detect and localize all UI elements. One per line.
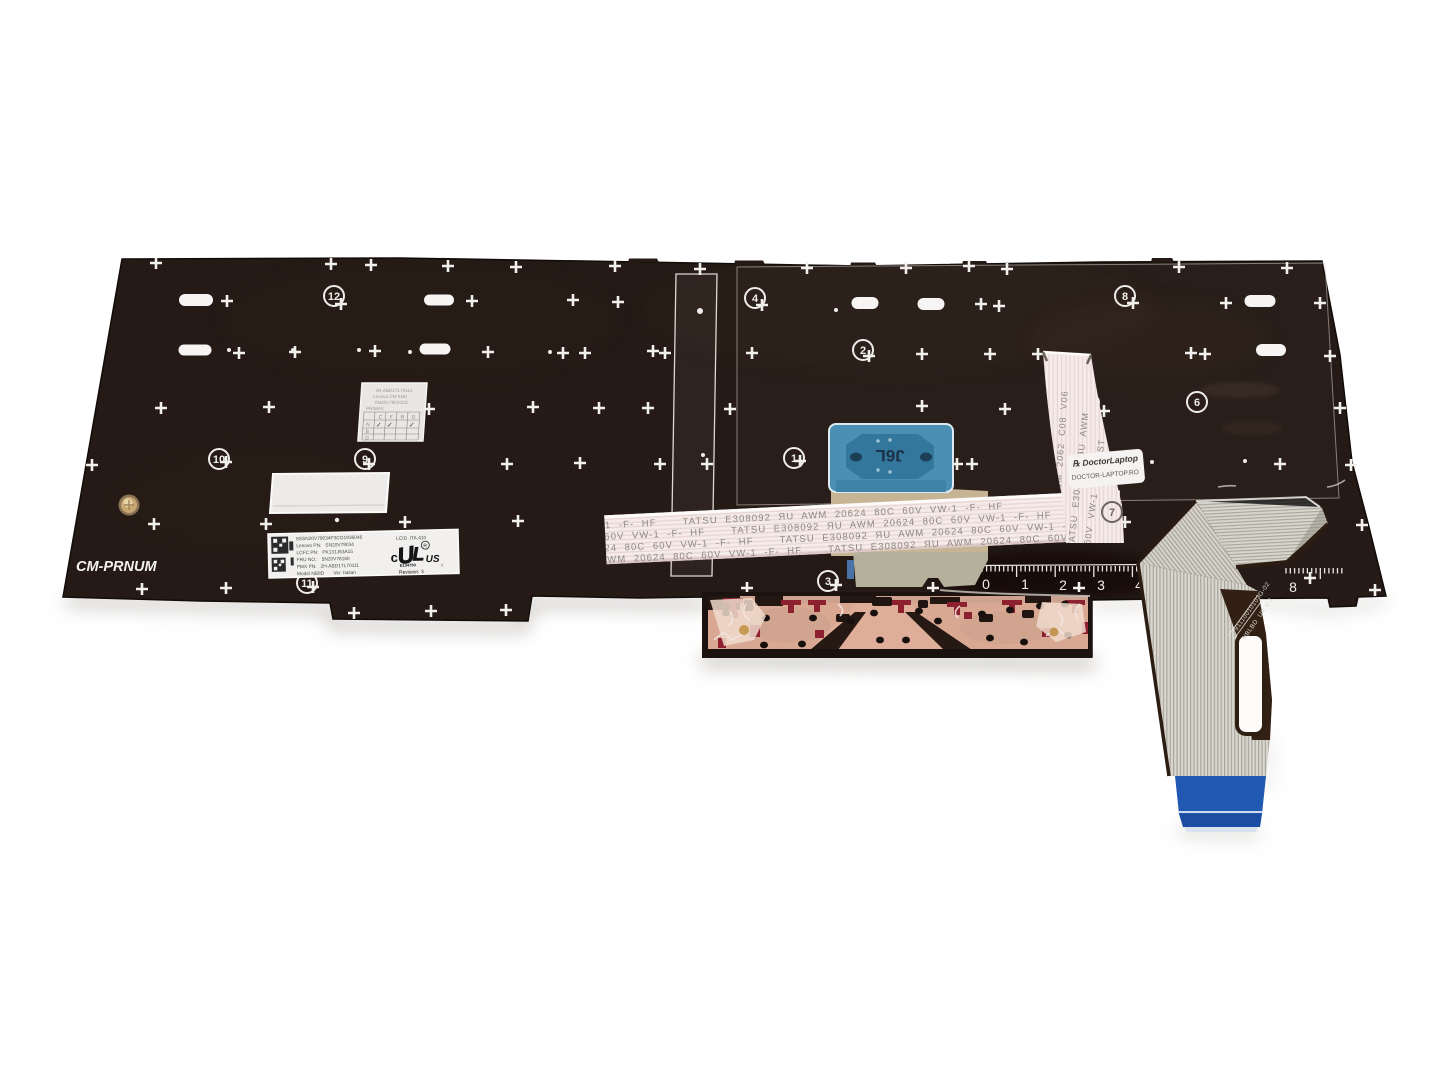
svg-text:K: K <box>441 563 444 568</box>
svg-text:J6L: J6L <box>875 446 904 465</box>
svg-text:PRIMAX: PRIMAX <box>366 406 384 411</box>
svg-text:8: 8 <box>1122 291 1128 303</box>
svg-text:12: 12 <box>328 291 340 303</box>
svg-text:E134790: E134790 <box>400 562 417 567</box>
svg-text:✓: ✓ <box>409 422 415 429</box>
svg-text:R: R <box>423 543 427 549</box>
svg-text:3: 3 <box>825 576 831 588</box>
svg-text:2H-ABD1TL70111: 2H-ABD1TL70111 <box>375 388 413 393</box>
svg-text:G: G <box>365 436 369 442</box>
svg-text:2: 2 <box>1059 577 1067 593</box>
svg-text:F: F <box>389 415 392 421</box>
svg-text:✓: ✓ <box>387 422 393 429</box>
svg-text:✓: ✓ <box>376 422 382 429</box>
svg-text:7: 7 <box>1109 507 1115 519</box>
svg-text:4: 4 <box>752 293 759 305</box>
svg-text:6: 6 <box>1194 397 1200 409</box>
svg-text:1: 1 <box>1021 576 1029 592</box>
svg-text:3: 3 <box>1097 577 1105 593</box>
svg-text:9: 9 <box>362 454 368 466</box>
svg-text:Revision: 3: Revision: 3 <box>399 569 424 576</box>
svg-text:G: G <box>411 415 415 421</box>
svg-text:2: 2 <box>860 345 866 357</box>
svg-text:1: 1 <box>791 453 797 465</box>
svg-text:US: US <box>426 554 440 565</box>
svg-text:CM-PRNUM: CM-PRNUM <box>76 559 157 575</box>
svg-text:Lenovo CM KBD: Lenovo CM KBD <box>373 394 408 399</box>
svg-text:SN20V79034CE: SN20V79034CE <box>374 400 408 405</box>
svg-text:8: 8 <box>1289 579 1297 595</box>
svg-text:0: 0 <box>982 576 990 592</box>
svg-text:11: 11 <box>301 578 313 590</box>
svg-text:10: 10 <box>213 454 225 466</box>
